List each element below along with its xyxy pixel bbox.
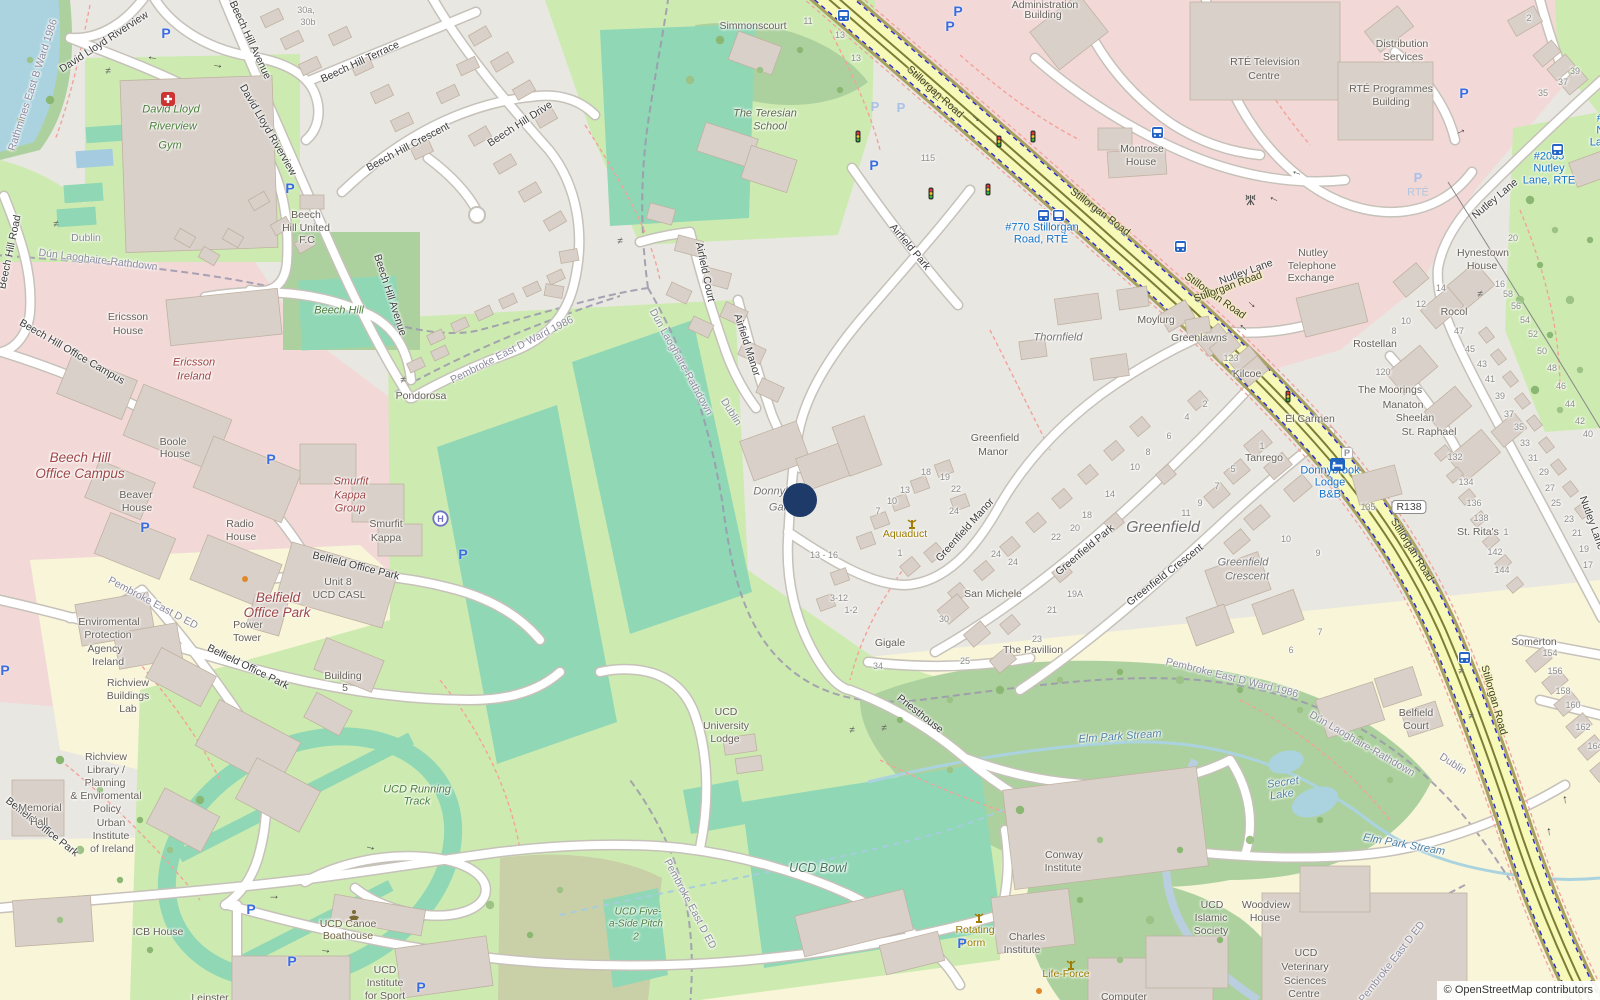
route-shield-r138: R138: [1391, 500, 1426, 514]
attribution[interactable]: © OpenStreetMap contributors: [1437, 981, 1600, 1000]
map-marker[interactable]: [783, 483, 817, 517]
map-canvas[interactable]: Rathmines East B Ward 1986David Lloyd Ri…: [0, 0, 1600, 1000]
cul-de-sac-bulb: [469, 207, 485, 223]
